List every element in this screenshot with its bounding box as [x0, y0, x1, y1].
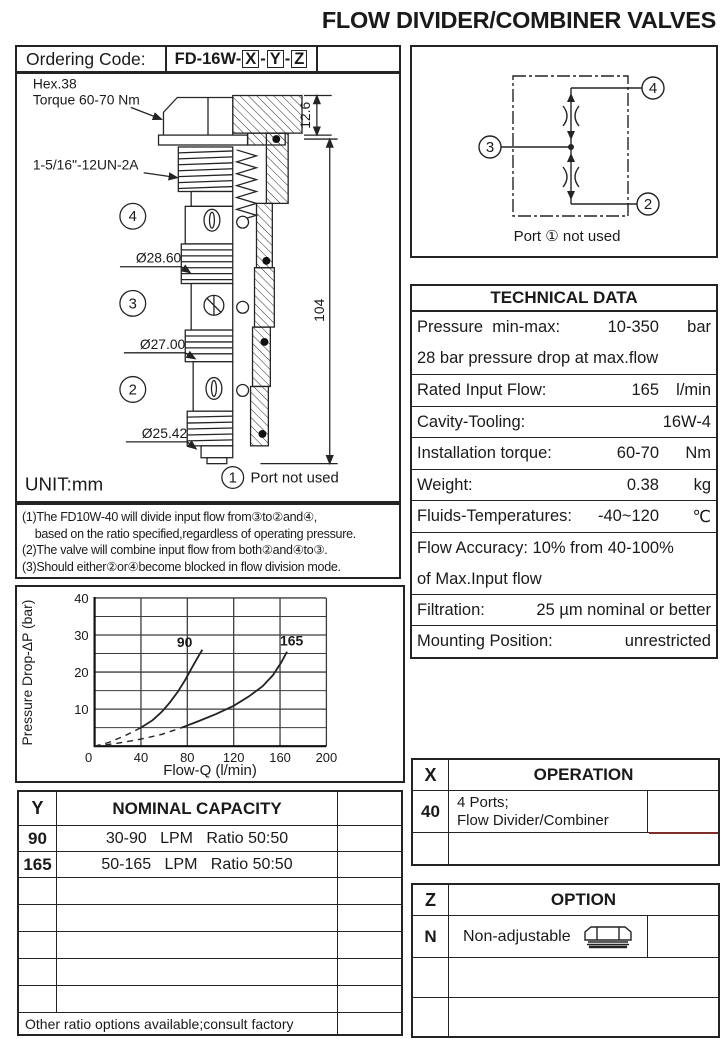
technical-data-row: Weight:0.38kg: [412, 469, 716, 501]
x-tick-label: 120: [223, 750, 245, 765]
capacity-empty-cell: [57, 932, 337, 958]
ordering-code-letter-box: Y: [267, 50, 284, 68]
capacity-footer-row: Other ratio options available;consult fa…: [19, 1012, 401, 1034]
op-col1-header: X: [413, 760, 449, 790]
technical-row-line1: Filtration:25 µm nominal or better: [417, 595, 711, 626]
series-90-curve: [141, 650, 202, 728]
capacity-empty-extra-cell: [337, 959, 401, 985]
capacity-empty-code-cell: [19, 986, 57, 1012]
opt-data-row: NNon-adjustable: [413, 915, 718, 957]
op-row-empty-cell: [648, 791, 718, 832]
x-tick-label: 200: [316, 750, 338, 765]
ordering-code-letter-box: Z: [291, 50, 307, 68]
opt-row-code: N: [413, 916, 449, 957]
technical-row-value: 25 µm nominal or better: [536, 601, 711, 620]
technical-data-row: Flow Accuracy: 10% from 40-100%of Max.In…: [412, 532, 716, 594]
technical-data-row: Pressure min-max:10-350bar28 bar pressur…: [412, 312, 716, 374]
dia-25-42-label: Ø25.42: [142, 425, 187, 441]
technical-row-line1: Flow Accuracy: 10% from 40-100%: [417, 533, 711, 564]
capacity-empty-extra-cell: [337, 986, 401, 1012]
unit-label: UNIT:mm: [25, 473, 103, 494]
technical-data-row: Mounting Position:unrestricted: [412, 625, 716, 657]
opt-empty-cell: [449, 958, 718, 997]
technical-row-label: Fluids-Temperatures:: [417, 507, 572, 526]
technical-row-label: Flow Accuracy: 10% from 40-100%: [417, 539, 674, 558]
ordering-code-bar: Ordering Code: FD-16W-X-Y-Z: [15, 45, 401, 73]
capacity-col2-header: NOMINAL CAPACITY: [57, 792, 337, 825]
ordering-code-value: FD-16W-X-Y-Z: [165, 47, 318, 71]
hex-label: Hex.38: [33, 76, 77, 92]
ordering-code-separator: -: [285, 50, 291, 69]
technical-row-value: unrestricted: [625, 632, 711, 651]
technical-row-value: 10-350: [608, 318, 659, 337]
capacity-footer-extra-cell: [337, 1013, 401, 1034]
opt-header-row: ZOPTION: [413, 885, 718, 915]
technical-row-value: 0.38: [627, 476, 659, 495]
ordering-code-empty-cell: [318, 47, 399, 71]
capacity-footer-note: Other ratio options available;consult fa…: [19, 1013, 337, 1034]
pressure-drop-chart: Pressure Drop-ΔP (bar) Flow-Q (l/min) 04…: [17, 587, 403, 781]
port-4-label: 4: [129, 209, 137, 225]
port-2-label: 2: [129, 382, 137, 398]
ordering-code-letter-box: X: [242, 50, 259, 68]
technical-row-label: Cavity-Tooling:: [417, 413, 525, 432]
op-description-line: Flow Divider/Combiner: [457, 812, 647, 830]
schematic-port-2: 2: [644, 196, 652, 213]
chart-y-axis-label: Pressure Drop-ΔP (bar): [19, 600, 35, 746]
thread-label: 1-5/16"-12UN-2A: [33, 157, 139, 173]
capacity-row-extra-cell: [337, 852, 401, 877]
technical-data-table: TECHNICAL DATA Pressure min-max:10-350ba…: [410, 284, 718, 659]
op-header-row: XOPERATION: [413, 760, 718, 790]
function-notes: (1)The FD10W-40 will divide input flow f…: [15, 503, 401, 579]
schematic-caption: Port ① not used: [514, 228, 621, 245]
technical-row-unit: Nm: [659, 444, 711, 463]
capacity-empty-row: [19, 904, 401, 931]
ordering-code-separator: -: [260, 50, 266, 69]
technical-row-value: 16W-4: [663, 413, 711, 432]
schematic-port-4: 4: [649, 80, 657, 97]
op-data-row: 404 Ports;Flow Divider/Combiner: [413, 790, 718, 832]
capacity-row-code: 90: [19, 826, 57, 851]
technical-row-value: 165: [631, 381, 659, 400]
capacity-empty-row: [19, 958, 401, 985]
capacity-empty-row: [19, 985, 401, 1012]
performance-chart-box: Pressure Drop-ΔP (bar) Flow-Q (l/min) 04…: [15, 585, 405, 783]
technical-row-line1: Weight:0.38kg: [417, 470, 711, 501]
opt-empty-code-cell: [413, 998, 449, 1037]
x-tick-label: 40: [134, 750, 148, 765]
capacity-empty-cell: [57, 878, 337, 904]
technical-row-value: 60-70: [617, 444, 659, 463]
technical-row-label: Installation torque:: [417, 444, 552, 463]
valve-drawing-box: Hex.38 Torque 60-70 Nm 1-5/16"-12UN-2A 1…: [15, 72, 401, 503]
capacity-data-row: 9030-90 LPM Ratio 50:50: [19, 825, 401, 851]
ordering-code-prefix: FD-16W-: [175, 50, 242, 69]
schematic-port-3: 3: [486, 139, 494, 156]
capacity-empty-extra-cell: [337, 932, 401, 958]
dia-28-60-label: Ø28.60: [136, 250, 182, 266]
op-col2-header: OPERATION: [449, 760, 718, 790]
series-90-label: 90: [177, 634, 193, 650]
capacity-empty-row: [19, 877, 401, 904]
capacity-empty-code-cell: [19, 959, 57, 985]
op-empty-code-cell: [413, 833, 449, 864]
opt-empty-row: [413, 957, 718, 997]
dim-104: 104: [311, 298, 327, 321]
x-tick-label: 0: [85, 750, 92, 765]
capacity-row-text: 50-165 LPM Ratio 50:50: [57, 852, 337, 877]
opt-row-empty-cell: [648, 916, 718, 957]
note-line: (1)The FD10W-40 will divide input flow f…: [22, 509, 394, 526]
technical-row-label: Filtration:: [417, 601, 485, 620]
capacity-col1-header: Y: [19, 792, 57, 825]
technical-data-rows: Pressure min-max:10-350bar28 bar pressur…: [412, 312, 716, 657]
capacity-empty-cell: [57, 905, 337, 931]
technical-row-label: Rated Input Flow:: [417, 381, 546, 400]
opt-empty-row: [413, 997, 718, 1037]
port-1-circle-label: 1: [229, 470, 237, 486]
technical-row-unit: l/min: [659, 381, 711, 400]
technical-row-unit: kg: [659, 476, 711, 495]
opt-col2-header: OPTION: [449, 885, 718, 915]
capacity-empty-extra-cell: [337, 905, 401, 931]
page-title: FLOW DIVIDER/COMBINER VALVES: [322, 7, 716, 34]
technical-row-unit: ℃: [659, 507, 711, 527]
port-1-note: Port not used: [251, 470, 339, 486]
technical-row-label: Pressure min-max:: [417, 318, 560, 337]
technical-row-value: -40~120: [598, 507, 659, 526]
y-tick-label: 40: [74, 591, 88, 606]
technical-row-line1: Mounting Position:unrestricted: [417, 626, 711, 657]
note-line: (3)Should either②or④become blocked in fl…: [22, 559, 394, 576]
technical-row-line1: Rated Input Flow:165l/min: [417, 375, 711, 406]
series-165-label: 165: [280, 632, 303, 648]
capacity-row-text: 30-90 LPM Ratio 50:50: [57, 826, 337, 851]
technical-data-row: Fluids-Temperatures:-40~120℃: [412, 500, 716, 532]
x-tick-label: 80: [180, 750, 194, 765]
capacity-extra-header-cell: [337, 792, 401, 825]
opt-description-text: Non-adjustable: [463, 928, 571, 946]
capacity-empty-extra-cell: [337, 878, 401, 904]
operation-table: XOPERATION404 Ports;Flow Divider/Combine…: [411, 758, 720, 866]
capacity-empty-code-cell: [19, 878, 57, 904]
hydraulic-schematic: 4 3 2 Port ① not used: [412, 47, 716, 256]
opt-row-description: Non-adjustable: [449, 916, 648, 957]
capacity-row-extra-cell: [337, 826, 401, 851]
op-empty-cell: [449, 833, 718, 864]
op-accent-line: [649, 832, 718, 835]
opt-empty-code-cell: [413, 958, 449, 997]
y-tick-label: 20: [74, 665, 88, 680]
capacity-data-row: 16550-165 LPM Ratio 50:50: [19, 851, 401, 877]
port-3-label: 3: [129, 296, 137, 312]
capacity-empty-code-cell: [19, 932, 57, 958]
torque-label: Torque 60-70 Nm: [33, 91, 140, 107]
technical-row-unit: bar: [659, 318, 711, 337]
technical-row-line2: of Max.Input flow: [417, 564, 711, 594]
technical-data-row: Filtration:25 µm nominal or better: [412, 594, 716, 626]
valve-cross-section-drawing: Hex.38 Torque 60-70 Nm 1-5/16"-12UN-2A 1…: [17, 74, 399, 501]
op-empty-row: [413, 832, 718, 864]
technical-data-row: Rated Input Flow:165l/min: [412, 374, 716, 406]
hex-plug-icon: [581, 924, 635, 950]
ordering-code-label: Ordering Code:: [17, 47, 165, 71]
option-table: ZOPTIONNNon-adjustable: [411, 883, 720, 1038]
op-row-code: 40: [413, 791, 449, 832]
y-tick-label: 10: [74, 702, 88, 717]
technical-data-row: Installation torque:60-70Nm: [412, 437, 716, 469]
technical-row-line1: Installation torque:60-70Nm: [417, 438, 711, 469]
technical-data-row: Cavity-Tooling:16W-4: [412, 406, 716, 438]
technical-row-line1: Cavity-Tooling:16W-4: [417, 407, 711, 438]
op-row-description: 4 Ports;Flow Divider/Combiner: [449, 791, 648, 832]
capacity-header-row: YNOMINAL CAPACITY: [19, 792, 401, 825]
capacity-empty-code-cell: [19, 905, 57, 931]
dim-12-6: 12.6: [297, 102, 313, 129]
note-line: (2)The valve will combine input flow fro…: [22, 542, 394, 559]
technical-row-line1: Fluids-Temperatures:-40~120℃: [417, 501, 711, 532]
note-line: based on the ratio specified,regardless …: [22, 526, 394, 543]
capacity-row-code: 165: [19, 852, 57, 877]
capacity-empty-cell: [57, 986, 337, 1012]
technical-row-label: Weight:: [417, 476, 473, 495]
opt-col1-header: Z: [413, 885, 449, 915]
hydraulic-schematic-box: 4 3 2 Port ① not used: [410, 45, 718, 258]
technical-row-label: Mounting Position:: [417, 632, 553, 651]
opt-empty-cell: [449, 998, 718, 1037]
dia-27-00-label: Ø27.00: [140, 336, 186, 352]
technical-row-line2: 28 bar pressure drop at max.flow: [417, 343, 711, 374]
capacity-empty-row: [19, 931, 401, 958]
op-description-line: 4 Ports;: [457, 794, 647, 812]
capacity-empty-cell: [57, 959, 337, 985]
x-tick-label: 160: [269, 750, 291, 765]
nominal-capacity-table: YNOMINAL CAPACITY9030-90 LPM Ratio 50:50…: [17, 790, 403, 1036]
technical-data-title: TECHNICAL DATA: [412, 286, 716, 312]
y-tick-label: 30: [74, 628, 88, 643]
technical-row-line1: Pressure min-max:10-350bar: [417, 312, 711, 343]
datasheet-page: FLOW DIVIDER/COMBINER VALVES Ordering Co…: [0, 0, 721, 1039]
